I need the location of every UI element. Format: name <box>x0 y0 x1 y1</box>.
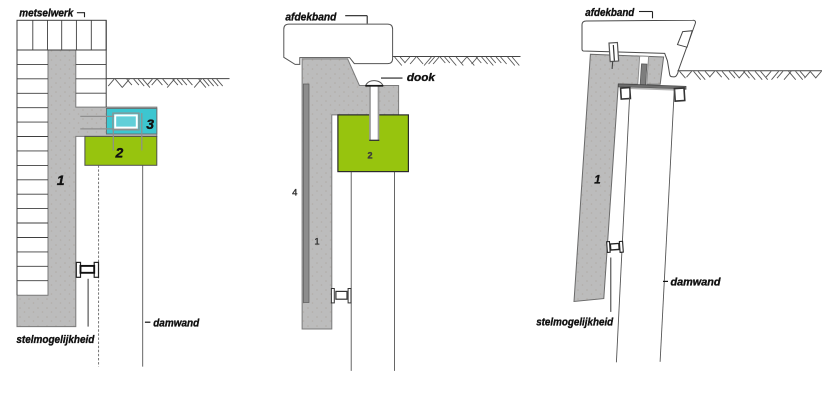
svg-text:damwand: damwand <box>671 277 721 289</box>
svg-text:stelmogelijkheid: stelmogelijkheid <box>16 334 94 346</box>
svg-text:metselwerk: metselwerk <box>19 7 74 19</box>
svg-text:2: 2 <box>115 145 124 161</box>
svg-text:afdekband: afdekband <box>585 7 634 19</box>
svg-text:1: 1 <box>57 172 65 188</box>
svg-text:1: 1 <box>594 175 600 187</box>
svg-text:1: 1 <box>314 236 319 247</box>
svg-text:3: 3 <box>146 116 154 132</box>
svg-text:dook: dook <box>407 72 436 84</box>
svg-text:4: 4 <box>292 188 297 199</box>
svg-text:2: 2 <box>368 151 373 161</box>
svg-text:afdekband: afdekband <box>285 11 336 23</box>
svg-text:damwand: damwand <box>153 317 199 329</box>
svg-text:stelmogelijkheid: stelmogelijkheid <box>536 317 613 329</box>
